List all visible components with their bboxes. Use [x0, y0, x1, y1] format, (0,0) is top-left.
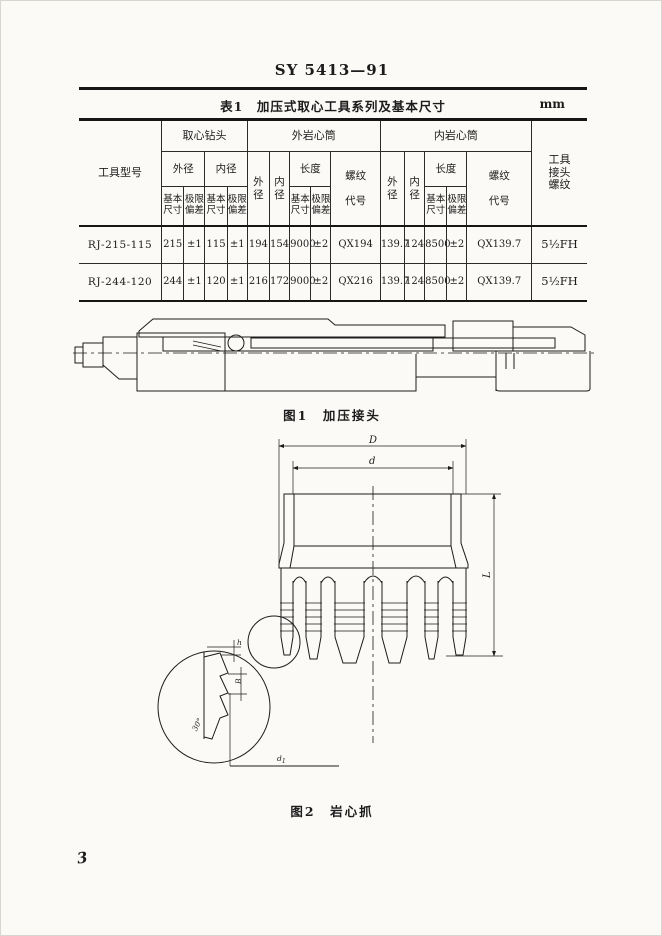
figure1-drawing [73, 319, 598, 391]
dim-label-d1: d1 [277, 754, 286, 765]
figure2-drawing: D d [158, 435, 503, 766]
dimension-table: 工具型号 取心钻头 外岩心筒 内岩心筒 工具 接头 螺纹 外径 内径 外 径 内… [79, 118, 587, 302]
figure2-caption: 图2 岩心抓 [1, 801, 662, 820]
cell-ob-id: 154 [269, 226, 289, 264]
header-cell-ib-od: 外 径 [380, 152, 404, 227]
dim-label-pitch: B [234, 678, 243, 685]
header-cell-ob-od: 外 径 [247, 152, 269, 227]
table-caption-row: 表1 加压式取心工具系列及基本尺寸 mm [79, 96, 587, 116]
table-unit: mm [540, 97, 565, 111]
header-cell-tool-model: 工具型号 [79, 120, 162, 227]
scanned-document-page: SY 5413—91 表1 加压式取心工具系列及基本尺寸 mm 工具型号 取心钻… [0, 0, 662, 936]
cell-ob-od: 216 [247, 264, 269, 302]
table-row: RJ-215-115 215 ±1 115 ±1 194 154 9000 ±2… [79, 226, 587, 264]
cell-ob-len: 9000 [290, 264, 311, 302]
cell-ib-od: 139.7 [380, 264, 404, 302]
cell-ob-len-dev: ±2 [311, 226, 331, 264]
cell-bit-id: 115 [205, 226, 227, 264]
table-row: RJ-244-120 244 ±1 120 ±1 216 172 9000 ±2… [79, 264, 587, 302]
header-cell-ib-thread: 螺纹 代号 [467, 152, 532, 227]
header-cell-basic: 基本 尺寸 [290, 187, 311, 227]
header-cell-joint-thread: 工具 接头 螺纹 [531, 120, 587, 227]
standard-number: SY 5413—91 [1, 61, 662, 79]
figure2-core-catcher-drawing: D d [141, 431, 521, 791]
cell-model: RJ-244-120 [79, 264, 162, 302]
horizontal-rule [79, 87, 587, 90]
cell-bit-od-dev: ±1 [184, 264, 205, 302]
header-cell-dev: 极限 偏差 [311, 187, 331, 227]
cell-ob-len: 9000 [290, 226, 311, 264]
figure1-pressurized-joint-drawing [73, 307, 598, 403]
header-cell-id: 内径 [205, 152, 247, 187]
cell-ob-od: 194 [247, 226, 269, 264]
cell-ib-thread: QX139.7 [467, 226, 532, 264]
serration-profile [204, 653, 228, 739]
dim-label-D: D [368, 435, 377, 446]
angle-label: 30° [190, 716, 204, 732]
cell-ib-len: 8500 [425, 226, 447, 264]
header-cell-dev: 极限 偏差 [447, 187, 467, 227]
header-cell-basic: 基本 尺寸 [425, 187, 447, 227]
cell-bit-id-dev: ±1 [227, 264, 247, 302]
outer-tube-section [139, 319, 445, 337]
cell-ob-thread: QX216 [331, 264, 380, 302]
left-wall-section [279, 494, 294, 568]
header-cell-coring-bit: 取心钻头 [162, 120, 248, 152]
cell-ib-thread: QX139.7 [467, 264, 532, 302]
dim-label-L: L [482, 571, 493, 579]
finger-ribs [280, 603, 467, 631]
table-caption: 表1 加压式取心工具系列及基本尺寸 [79, 96, 587, 115]
header-cell-outer-barrel: 外岩心筒 [247, 120, 380, 152]
detail-view-circle [158, 651, 270, 763]
catcher-fingers [280, 568, 467, 663]
cell-bit-od: 215 [162, 226, 184, 264]
cell-bit-id-dev: ±1 [227, 226, 247, 264]
header-cell-inner-barrel: 内岩心筒 [380, 120, 531, 152]
right-wall-section [451, 494, 468, 568]
dim-label-h: h [237, 638, 242, 647]
right-cap-section [513, 327, 585, 351]
header-cell-ib-id: 内 径 [405, 152, 425, 227]
figure1-caption: 图1 加压接头 [1, 405, 662, 424]
cell-bit-od-dev: ±1 [184, 226, 205, 264]
cell-ob-id: 172 [269, 264, 289, 302]
header-cell-od: 外径 [162, 152, 205, 187]
cell-joint-thread: 5½FH [531, 264, 587, 302]
header-cell-ob-thread: 螺纹 代号 [331, 152, 380, 227]
header-cell-dev: 极限 偏差 [184, 187, 205, 227]
cell-ib-len-dev: ±2 [447, 226, 467, 264]
header-cell-dev: 极限 偏差 [227, 187, 247, 227]
cell-ib-id: 124 [405, 226, 425, 264]
cell-ib-len-dev: ±2 [447, 264, 467, 302]
cell-model: RJ-215-115 [79, 226, 162, 264]
cell-bit-od: 244 [162, 264, 184, 302]
header-cell-basic: 基本 尺寸 [205, 187, 227, 227]
cell-ib-len: 8500 [425, 264, 447, 302]
header-cell-basic: 基本 尺寸 [162, 187, 184, 227]
d1-subscript: 1 [282, 758, 286, 765]
cell-joint-thread: 5½FH [531, 226, 587, 264]
cell-ob-thread: QX194 [331, 226, 380, 264]
cell-ib-id: 124 [405, 264, 425, 302]
cell-ob-len-dev: ±2 [311, 264, 331, 302]
cell-bit-id: 120 [205, 264, 227, 302]
cell-ib-od: 139.7 [380, 226, 404, 264]
page-number: 3 [76, 848, 89, 867]
header-cell-ob-length: 长度 [290, 152, 331, 187]
header-cell-ob-id: 内 径 [269, 152, 289, 227]
right-collar-section [453, 321, 513, 351]
mandrel-tube-section [251, 338, 555, 348]
header-cell-ib-length: 长度 [425, 152, 467, 187]
dim-label-d: d [369, 456, 375, 467]
